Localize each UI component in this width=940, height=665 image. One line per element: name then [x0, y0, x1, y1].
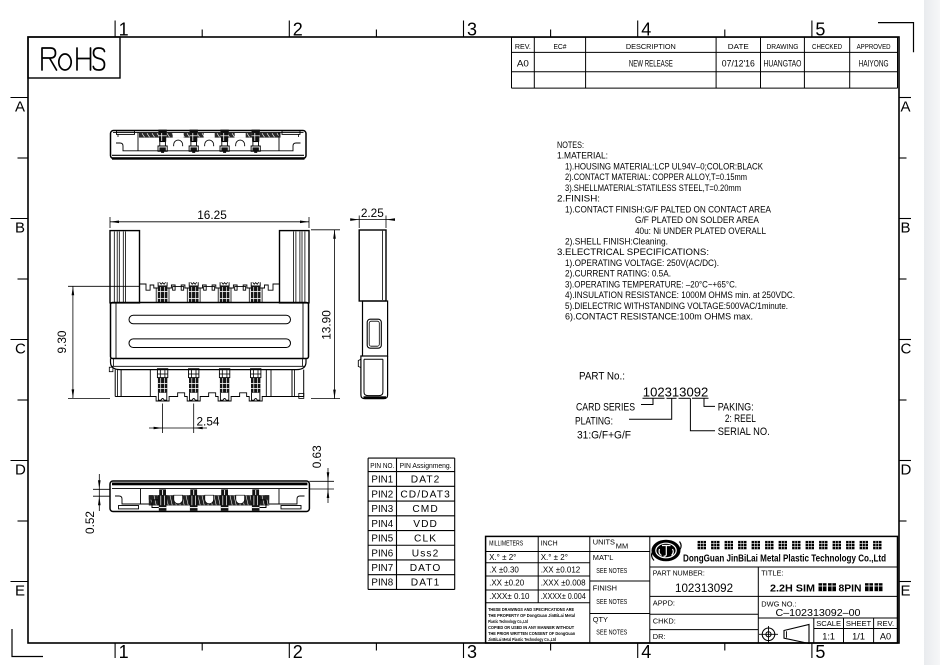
svg-text:1:1: 1:1	[822, 632, 835, 642]
svg-text:FINISH: FINISH	[593, 584, 617, 593]
svg-text:PIN5: PIN5	[371, 534, 393, 545]
svg-text:PLATING:: PLATING:	[575, 416, 613, 428]
svg-text:REV.: REV.	[515, 42, 531, 51]
svg-text:MAT'L: MAT'L	[593, 553, 614, 562]
svg-text:C: C	[901, 341, 912, 358]
svg-text:.XXXX± 0.004: .XXXX± 0.004	[541, 592, 586, 601]
svg-text:SEE NOTES: SEE NOTES	[596, 566, 627, 575]
svg-text:4).INSULATION RESISTANCE: 1000: 4).INSULATION RESISTANCE: 1000M OHMS min…	[565, 290, 795, 301]
svg-text:SHEET: SHEET	[846, 619, 872, 628]
svg-text:Uss2: Uss2	[412, 548, 440, 559]
svg-text:2: 2	[293, 20, 303, 40]
svg-text:5: 5	[815, 20, 825, 40]
svg-text:2).CURRENT RATING: 0.5A.: 2).CURRENT RATING: 0.5A.	[565, 269, 671, 280]
svg-text:DongGuan JinBiLai Metal Plasti: DongGuan JinBiLai Metal Plastic Technolo…	[683, 554, 886, 565]
svg-text:2: REEL: 2: REEL	[725, 413, 756, 425]
svg-text:0.52: 0.52	[83, 511, 97, 534]
svg-text:E: E	[15, 583, 25, 600]
svg-text:102313092: 102313092	[643, 386, 709, 400]
svg-text:CHKD:: CHKD:	[653, 617, 676, 626]
svg-text:EC#: EC#	[553, 42, 567, 51]
svg-text:.XX ±0.012: .XX ±0.012	[541, 565, 581, 574]
svg-text:102313092: 102313092	[675, 583, 733, 595]
svg-text:VDD: VDD	[413, 519, 438, 530]
svg-text:.XXX± 0.10: .XXX± 0.10	[489, 592, 530, 601]
svg-text:DATE: DATE	[728, 42, 749, 51]
svg-text:DAT1: DAT1	[411, 578, 441, 589]
svg-text:MM: MM	[616, 541, 628, 550]
svg-text:TITLE:: TITLE:	[761, 569, 783, 578]
svg-text:JinBiLai Metal Plastic Technol: JinBiLai Metal Plastic Technology Co.,Lt…	[488, 637, 556, 642]
svg-text:31:G/F+G/F: 31:G/F+G/F	[577, 429, 631, 441]
svg-text:2: 2	[293, 642, 303, 662]
svg-text:16.25: 16.25	[197, 208, 227, 222]
svg-text:5: 5	[815, 642, 825, 662]
svg-text:X.° ± 2°: X.° ± 2°	[541, 553, 568, 562]
svg-text:PIN3: PIN3	[371, 504, 393, 515]
svg-text:B: B	[901, 220, 911, 237]
svg-text:G/F PLATED ON SOLDER AREA: G/F PLATED ON SOLDER AREA	[635, 215, 760, 226]
svg-text:PIN7: PIN7	[371, 563, 393, 574]
svg-text:THE PROPERTY OF DongGuan JinBi: THE PROPERTY OF DongGuan JinBiLai Metal	[488, 613, 575, 618]
svg-text:PAKING:: PAKING:	[718, 402, 754, 414]
svg-text:3: 3	[467, 20, 477, 40]
svg-text:SERIAL NO.: SERIAL NO.	[718, 426, 770, 438]
svg-text:2.54: 2.54	[197, 414, 220, 428]
svg-text:1).HOUSING MATERIAL:LCP UL94V–: 1).HOUSING MATERIAL:LCP UL94V–0;COLOR:BL…	[565, 161, 764, 172]
svg-text:4: 4	[641, 20, 651, 40]
svg-text:2).CONTACT MATERIAL: COPPER AL: 2).CONTACT MATERIAL: COPPER ALLOY,T=0.15…	[565, 172, 747, 183]
svg-text:B: B	[15, 220, 25, 237]
svg-text:PIN Assignmeng.: PIN Assignmeng.	[400, 461, 452, 470]
svg-text:PIN NO.: PIN NO.	[370, 461, 394, 470]
svg-text:3).SHELLMATERIAL:STATILESS STE: 3).SHELLMATERIAL:STATILESS STEEL,T=0.20m…	[565, 183, 741, 194]
svg-text:CLK: CLK	[414, 534, 437, 545]
svg-text:DAT2: DAT2	[411, 475, 441, 486]
svg-text:CHECKED: CHECKED	[812, 42, 842, 51]
svg-text:SEE NOTES: SEE NOTES	[596, 597, 627, 606]
svg-text:C–102313092–00: C–102313092–00	[776, 607, 861, 619]
svg-text:CMD: CMD	[412, 504, 439, 515]
svg-text:4: 4	[641, 642, 651, 662]
svg-text:8PIN: 8PIN	[839, 583, 862, 594]
svg-text:SEE NOTES: SEE NOTES	[596, 628, 627, 637]
svg-text:CD/DAT3: CD/DAT3	[400, 489, 451, 500]
svg-text:COPIED OR USED IN ANY MANNER W: COPIED OR USED IN ANY MANNER WITHOUT	[488, 625, 574, 630]
svg-text:PIN8: PIN8	[371, 578, 393, 589]
svg-text:THESE DRAWINGS AND SPECIFICATI: THESE DRAWINGS AND SPECIFICATIONS ARE	[488, 607, 574, 612]
svg-text:1/1: 1/1	[852, 632, 865, 642]
svg-text:REV.: REV.	[877, 619, 894, 628]
svg-text:1.MATERIAL:: 1.MATERIAL:	[557, 151, 608, 162]
svg-text:E: E	[901, 583, 911, 600]
svg-text:1).OPERATING VOLTAGE: 250V(AC/: 1).OPERATING VOLTAGE: 250V(AC/DC).	[565, 258, 719, 269]
svg-text:SCALE: SCALE	[816, 619, 841, 628]
svg-text:D: D	[901, 462, 912, 479]
svg-text:1: 1	[119, 642, 129, 662]
svg-text:0.63: 0.63	[310, 445, 324, 468]
svg-text:HAIYONG: HAIYONG	[859, 59, 889, 69]
svg-text:A: A	[901, 99, 911, 116]
svg-text:A0: A0	[517, 59, 529, 69]
svg-text:40u: Ni UNDER PLATED OVERALL: 40u: Ni UNDER PLATED OVERALL	[635, 226, 766, 237]
svg-text:.X ±0.30: .X ±0.30	[489, 565, 519, 574]
svg-text:DR:: DR:	[653, 632, 666, 641]
svg-text:NEW RELEASE: NEW RELEASE	[629, 59, 673, 69]
svg-text:PIN6: PIN6	[371, 548, 393, 559]
svg-text:3: 3	[467, 642, 477, 662]
svg-text:13.90: 13.90	[320, 310, 334, 340]
svg-text:.XX ±0.20: .XX ±0.20	[489, 579, 525, 588]
svg-text:PIN1: PIN1	[371, 475, 393, 486]
svg-text:PIN4: PIN4	[371, 519, 393, 530]
svg-text:HUANGTAO: HUANGTAO	[763, 59, 801, 69]
svg-text:PIN2: PIN2	[371, 489, 393, 500]
svg-text:INCH: INCH	[541, 539, 558, 548]
svg-text:DRAWING: DRAWING	[766, 42, 798, 51]
svg-text:1).CONTACT FINISH:G/F PALTED O: 1).CONTACT FINISH:G/F PALTED ON CONTACT …	[565, 204, 772, 215]
svg-text:X.° ± 2°: X.° ± 2°	[489, 553, 516, 562]
svg-text:C: C	[15, 341, 26, 358]
svg-text:NOTES:: NOTES:	[557, 140, 584, 151]
svg-text:Plastic Technology Co.,Ltd: Plastic Technology Co.,Ltd	[488, 619, 528, 624]
svg-text:UNITS: UNITS	[593, 538, 615, 547]
svg-text:PART NUMBER:: PART NUMBER:	[653, 569, 705, 578]
svg-text:5).DIELECTRIC WITHSTANDING VOL: 5).DIELECTRIC WITHSTANDING VOLTAGE:500VA…	[565, 301, 788, 312]
svg-text:CARD SERIES: CARD SERIES	[576, 402, 635, 414]
svg-text:6).CONTACT RESISTANCE:100m OHM: 6).CONTACT RESISTANCE:100m OHMS max.	[565, 312, 753, 323]
svg-text:2.2H SIM: 2.2H SIM	[770, 583, 815, 594]
svg-text:APPD:: APPD:	[653, 599, 675, 608]
svg-text:APPROVED: APPROVED	[857, 42, 891, 51]
svg-text:D: D	[15, 462, 26, 479]
svg-text:9.30: 9.30	[55, 330, 69, 353]
svg-text:THE PRIOR WRITTEN CONSENT OF D: THE PRIOR WRITTEN CONSENT OF DongGuan	[488, 631, 575, 636]
svg-text:A0: A0	[880, 632, 891, 642]
svg-text:2.FINISH:: 2.FINISH:	[557, 194, 600, 205]
svg-text:DATO: DATO	[410, 563, 442, 574]
svg-text:2).SHELL FINISH:Cleaning.: 2).SHELL FINISH:Cleaning.	[565, 236, 668, 247]
svg-text:.XXX ±0.008: .XXX ±0.008	[541, 579, 586, 588]
svg-text:DESCRIPTION: DESCRIPTION	[626, 42, 676, 51]
svg-text:QTY: QTY	[593, 615, 608, 624]
svg-text:07/12'16: 07/12'16	[722, 59, 755, 69]
svg-text:3.ELECTRICAL SPECIFICATIONS:: 3.ELECTRICAL SPECIFICATIONS:	[557, 247, 709, 258]
svg-text:PART No.:: PART No.:	[579, 371, 625, 383]
svg-text:A: A	[15, 99, 25, 116]
svg-text:MILLIMETERS: MILLIMETERS	[489, 539, 523, 548]
svg-text:2.25: 2.25	[361, 206, 384, 220]
svg-text:3).OPERATING TEMPERATURE: –20°: 3).OPERATING TEMPERATURE: –20°C~+65°C.	[565, 279, 737, 290]
